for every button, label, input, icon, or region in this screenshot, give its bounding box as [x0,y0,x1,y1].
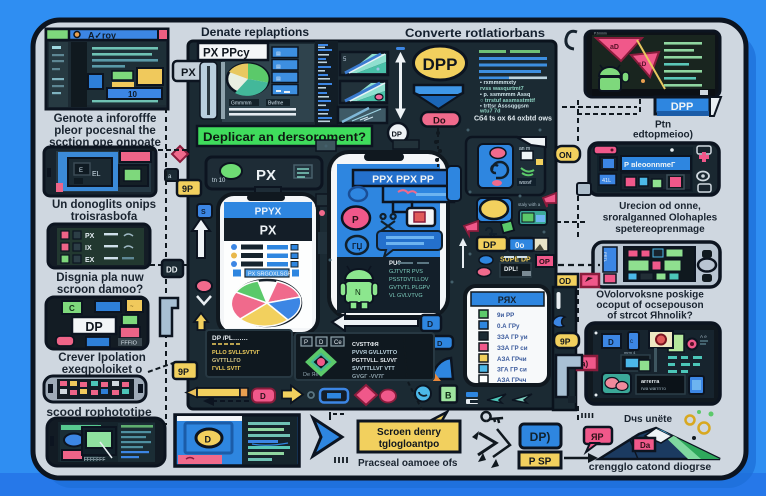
svg-text:wssvf: wssvf [519,180,532,186]
svg-text:GVGГ -VV7Г: GVGГ -VV7Г [352,374,385,380]
svg-text:VL GVLVTVG: VL GVLVTVG [389,293,423,299]
svg-text:АЗА ГРчч: АЗА ГРчч [497,377,527,384]
svg-text:P: P [304,340,308,346]
svg-text:SVVTTLLVГ VTT: SVVTTLLVГ VTT [352,366,395,372]
svg-text:CVSTTФЯ: CVSTTФЯ [352,342,379,348]
svg-text:Un donoglits onips: Un donoglits onips [52,199,156,211]
svg-text:Cе: Cе [334,340,342,346]
svg-text:PX PPсу: PX PPсу [203,48,250,60]
svg-text:ocoput of ocsepouson: ocoput of ocsepouson [596,300,703,311]
svg-text:PVVЯ GVLLVTГО: PVVЯ GVLLVTГО [352,350,398,356]
svg-text:9P: 9P [178,367,189,377]
svg-text:Gmmmm: Gmmmm [231,101,252,107]
svg-text:9и РР: 9и РР [497,312,514,319]
svg-text:staly with a: staly with a [518,202,541,207]
svg-text:0о: 0о [515,241,524,250]
svg-text:PGTTVLL. SLVVГ: PGTTVLL. SLVVГ [352,358,398,364]
svg-text:edtopmeioo): edtopmeioo) [633,130,693,141]
svg-text:P вlеооnnmеГ: P вlеооnnmеГ [624,160,676,169]
svg-text:OVolorvoksne poskige: OVolorvoksne poskige [596,290,704,301]
svg-text:DP: DP [85,320,102,334]
svg-text:A✓roy: A✓roy [88,31,116,41]
svg-text:S: S [201,209,206,216]
svg-text:сD: сD [638,61,647,68]
svg-text:crengglo catond diogrse: crengglo catond diogrse [589,461,712,473]
svg-text:rwа wаггггго: rwа wаггггго [641,386,666,391]
svg-text:scroon damoo?: scroon damoo? [57,284,143,296]
svg-text:DP: DP [392,130,402,139]
svg-text:PX: PX [85,233,95,240]
svg-text:PRTL: PRTL [603,252,608,263]
svg-text:аггегга: аггегга [641,379,660,385]
svg-text:EX: EX [85,257,95,264]
svg-text:PLLО SVLLSVTVГ: PLLО SVLLSVTVГ [212,350,261,356]
svg-text:10: 10 [128,90,137,99]
svg-text:Bwfme: Bwfme [268,101,284,107]
svg-text:ЗЗА ГР уи: ЗЗА ГР уи [497,334,528,341]
svg-text:EL: EL [92,171,101,178]
svg-text:DD: DD [166,266,178,275]
svg-text:pleor pocesnal the: pleor pocesnal the [54,125,156,137]
svg-text:C: C [69,304,75,313]
svg-text:wtu7 7d: wtu7 7d [479,109,500,115]
svg-text:GVTTLLГО: GVTTLLГО [212,358,241,364]
svg-text:N: N [355,288,361,297]
svg-text:PX SRGOXLSGP: PX SRGOXLSGP [248,272,292,278]
svg-text:PX: PX [181,67,196,79]
svg-text:B: B [445,391,452,401]
svg-text:DPP: DPP [671,101,694,113]
svg-text:ЗГА ГР си: ЗГА ГР си [497,367,527,374]
svg-text:PSSTDVTLLOV: PSSTDVTLLOV [389,277,429,283]
svg-text:ЗЗА ГР си: ЗЗА ГР си [497,345,528,352]
svg-text:D: D [608,338,614,347]
svg-text:E: E [79,168,83,174]
svg-text:D: D [427,319,433,329]
svg-text:9P: 9P [560,337,571,347]
svg-text:Pracsеal оamоее ofs: Pracsеal оamоее ofs [358,458,458,469]
svg-text:Crever Ipolation: Crever Ipolation [58,352,146,364]
svg-text:tn 10: tn 10 [212,178,226,184]
svg-text:с: с [630,339,633,345]
svg-text:А е: А е [700,334,707,339]
svg-text:P SP: P SP [529,457,552,468]
svg-text:FFFIO: FFFIO [121,341,138,347]
svg-text:GJTVTR PVS: GJTVTR PVS [389,269,423,275]
svg-text:аD: аD [610,44,619,51]
svg-text:DP /PL…….: DP /PL……. [212,335,248,342]
svg-text:Dо: Dо [433,116,446,127]
svg-text:PJmmm: PJmmm [594,32,607,36]
svg-text:Genote a inforofffe: Genote a inforofffe [54,113,157,125]
svg-text:OD: OD [559,277,571,286]
svg-text:Cб4 ts ox 64 oxbtd ows: Cб4 ts ox 64 oxbtd ows [474,115,552,123]
svg-text:ГЏ: ГЏ [352,242,363,251]
svg-text:ГVLL SVTГ: ГVLL SVTГ [212,366,242,372]
svg-text:OP: OP [539,257,550,266]
svg-text:PPX PPX PP: PPX PPX PP [372,174,434,186]
svg-text:GVTVTL PLGPV: GVTVTL PLGPV [389,285,430,291]
svg-text:IX: IX [85,245,92,252]
svg-text:D: D [437,339,443,348]
svg-text:D: D [260,392,266,401]
svg-text:Denate replaptions: Denate replaptions [201,25,309,39]
svg-text:DPL!: DPL! [504,267,518,273]
svg-text:tgloglоаntpo: tgloglоаntpo [379,439,440,450]
svg-text:troisrasbofa: troisrasbofa [71,211,138,223]
svg-text:ON: ON [559,150,572,160]
svg-text:PPYX: PPYX [255,207,282,218]
svg-text:~: ~ [130,304,134,310]
svg-text:DP): DP) [530,430,551,444]
svg-text:0.А ГРу: 0.А ГРу [497,323,520,330]
svg-text:FFFFFFF: FFFFFFF [84,457,105,463]
svg-text:Urecion od onne,: Urecion od onne, [619,201,701,212]
svg-text:P: P [352,215,359,226]
svg-text:41L: 41L [602,178,611,184]
svg-text:DPP: DPP [423,55,458,74]
svg-text:▤: ▤ [276,76,281,82]
svg-text:▤: ▤ [276,51,281,57]
svg-text:Dа: Dа [640,441,651,450]
svg-text:9P: 9P [182,184,193,194]
svg-text:D: D [205,435,212,445]
svg-text:of strcot Яhnolik?: of strcot Яhnolik? [607,311,693,322]
svg-text:Disgnia pla nuw: Disgnia pla nuw [56,272,144,284]
svg-text:▤: ▤ [276,64,281,70]
svg-text:ЯP: ЯP [591,432,603,442]
svg-text:DP: DP [483,240,497,251]
svg-text:АЗА ГРчи: АЗА ГРчи [497,356,527,363]
svg-text:PЯX: PЯX [498,295,516,305]
svg-text:sroralganned Olohaples: sroralganned Olohaples [603,213,718,224]
svg-text:PX: PX [260,224,277,238]
svg-text:Deplicar an dersoroment?: Deplicar an dersoroment? [203,132,366,144]
svg-text:spetereoprenmage: spetereoprenmage [615,224,705,235]
svg-text:Converte rotlatiorbans: Converte rotlatiorbans [405,26,545,40]
svg-text:exeqpoloiket o: exeqpoloiket o [62,364,143,376]
svg-text:Dчs unёte: Dчs unёte [624,414,672,425]
svg-text:D: D [319,340,324,346]
svg-text:Dе Яе: Dе Яе [303,372,319,378]
svg-text:PX: PX [256,167,276,184]
svg-text:Scroen dеnry: Scroen dеnry [377,427,441,438]
